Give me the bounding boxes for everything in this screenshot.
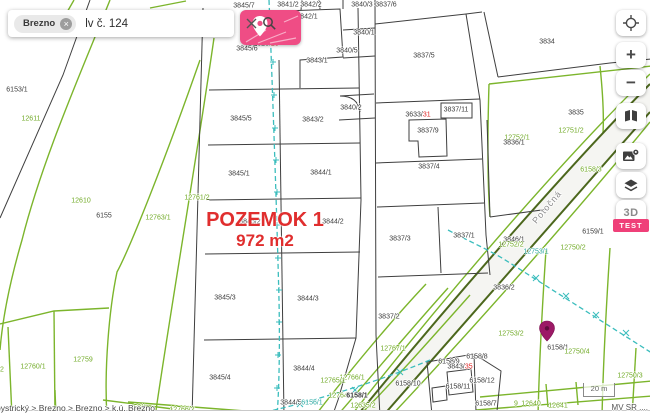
- highlight-parcel-annotation: POZEMOK 1 972 m2: [200, 209, 330, 251]
- basemap-button[interactable]: [616, 103, 646, 129]
- search-input[interactable]: [83, 17, 241, 31]
- highlight-parcel-area: 972 m2: [200, 231, 330, 251]
- zoom-out-button[interactable]: −: [616, 70, 646, 96]
- locate-me-button[interactable]: [616, 10, 646, 36]
- scale-bar: 20 m: [583, 383, 615, 397]
- chip-remove-icon[interactable]: ×: [60, 18, 72, 30]
- layers-button[interactable]: [616, 172, 646, 198]
- test-badge: TEST: [613, 219, 649, 232]
- imagery-pin-icon: [622, 148, 640, 164]
- map-viewport[interactable]: 3845/73841/23842/23842/13840/33837/63840…: [0, 0, 650, 417]
- location-pin[interactable]: [538, 320, 556, 347]
- three-d-label: 3D: [623, 207, 638, 219]
- layers-icon: [623, 178, 639, 193]
- highlight-parcel-title: POZEMOK 1: [200, 209, 330, 231]
- search-icon[interactable]: [262, 14, 277, 34]
- imagery-button[interactable]: [616, 143, 646, 169]
- breadcrumb[interactable]: bystrický > Brezno > Brezno > k.ú. Brezn…: [0, 403, 155, 413]
- attribution: MV SR ....: [612, 403, 648, 412]
- clear-search-icon[interactable]: [245, 14, 258, 34]
- basemap-book-icon: [623, 108, 639, 124]
- search-bar[interactable]: Brezno ×: [8, 10, 234, 37]
- zoom-in-button[interactable]: +: [616, 42, 646, 68]
- road-surface: [356, 84, 650, 417]
- locate-icon: [622, 14, 640, 32]
- search-chip-brezno[interactable]: Brezno ×: [14, 15, 76, 33]
- location-pin-icon: [538, 320, 556, 342]
- chip-label: Brezno: [23, 18, 55, 29]
